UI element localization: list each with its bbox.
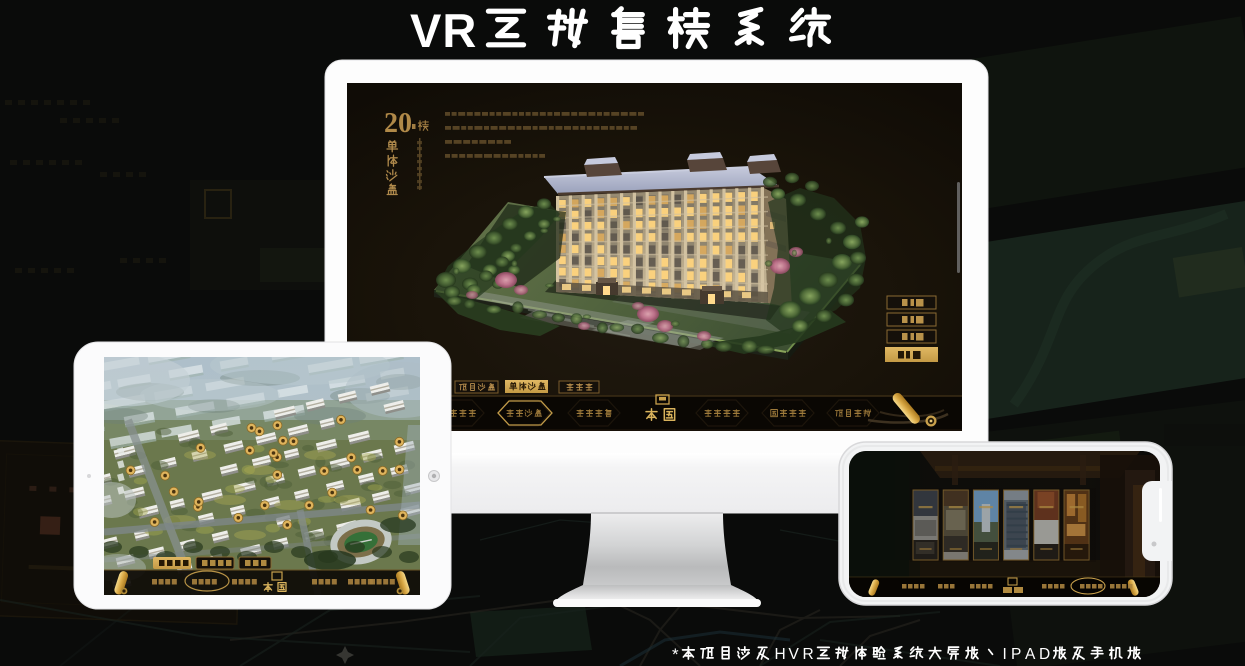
svg-text:A: A [1025,646,1036,663]
svg-text:D: D [1039,646,1050,663]
svg-text:V: V [789,646,800,663]
svg-text:*: * [672,645,679,664]
svg-text:R: R [803,646,814,663]
svg-text:VR: VR [410,4,477,57]
svg-text:H: H [775,646,786,663]
svg-text:I: I [1003,646,1007,663]
svg-text:P: P [1011,646,1021,663]
svg-text:20: 20 [384,108,412,139]
